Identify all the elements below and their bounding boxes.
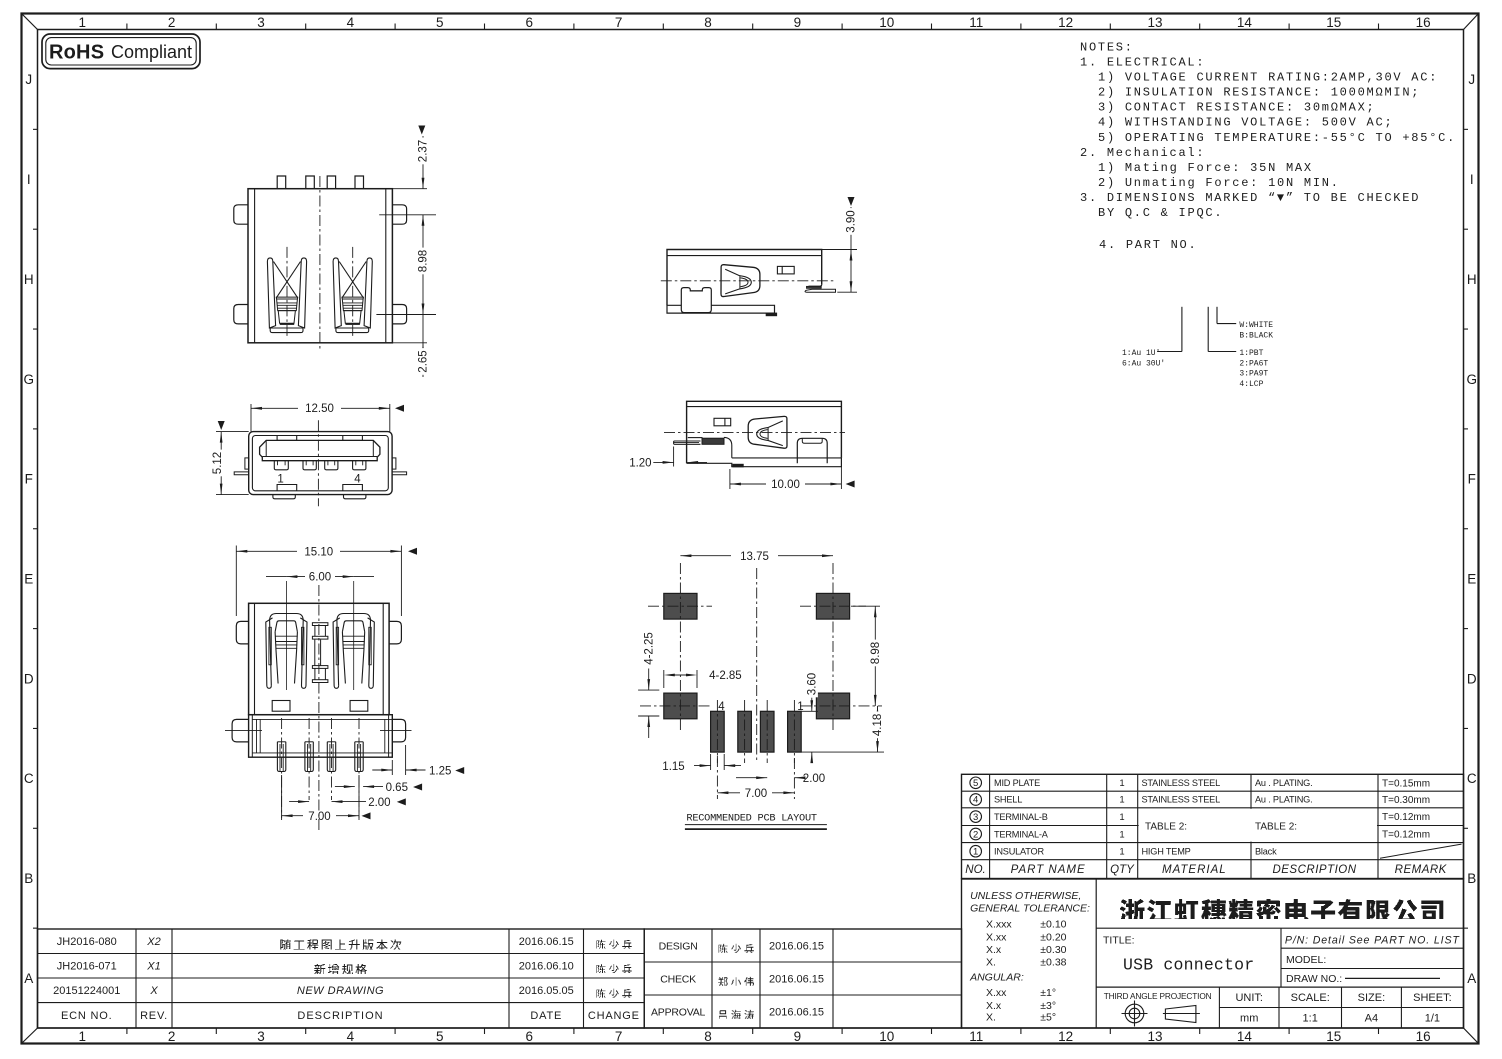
svg-text:J: J xyxy=(1468,72,1475,87)
svg-text:F: F xyxy=(1468,472,1476,487)
svg-text:4.18: 4.18 xyxy=(872,714,884,736)
svg-text:1: 1 xyxy=(277,473,283,485)
svg-text:4: 4 xyxy=(347,15,355,30)
svg-text:I: I xyxy=(27,172,31,187)
svg-text:12: 12 xyxy=(1058,15,1073,30)
svg-text:UNLESS OTHERWISE,: UNLESS OTHERWISE, xyxy=(970,890,1081,902)
svg-text:1.15: 1.15 xyxy=(662,761,684,773)
svg-text:2: 2 xyxy=(973,829,978,840)
svg-text:1.25: 1.25 xyxy=(429,766,451,778)
svg-text:4: 4 xyxy=(718,701,725,713)
svg-text:ANGULAR:: ANGULAR: xyxy=(969,972,1024,984)
svg-text:9: 9 xyxy=(794,1029,802,1044)
svg-text:11: 11 xyxy=(969,1029,983,1044)
svg-text:8.98: 8.98 xyxy=(418,250,430,272)
svg-text:1: 1 xyxy=(1119,846,1124,857)
svg-text:DRAW NO.:: DRAW NO.: xyxy=(1286,973,1342,985)
svg-text:C: C xyxy=(24,771,34,786)
svg-text:2016.06.15: 2016.06.15 xyxy=(769,973,824,985)
svg-text:20151224001: 20151224001 xyxy=(53,985,120,997)
svg-text:14: 14 xyxy=(1237,15,1253,30)
svg-text:T=0.12mm: T=0.12mm xyxy=(1382,812,1430,823)
svg-text:G: G xyxy=(24,372,35,387)
svg-text:8.98: 8.98 xyxy=(870,642,882,664)
svg-text:DATE: DATE xyxy=(530,1010,562,1022)
svg-text:4-2.25: 4-2.25 xyxy=(643,632,655,665)
svg-text:4: 4 xyxy=(347,1029,355,1044)
svg-text:6:Au 30U': 6:Au 30U' xyxy=(1122,359,1165,368)
svg-text:3: 3 xyxy=(257,1029,265,1044)
svg-text:1) VOLTAGE CURRENT RATING:2AMP: 1) VOLTAGE CURRENT RATING:2AMP,30V AC: xyxy=(1098,70,1438,84)
svg-text:DESCRIPTION: DESCRIPTION xyxy=(297,1010,383,1022)
svg-text:2.00: 2.00 xyxy=(368,797,390,809)
svg-text:12: 12 xyxy=(1058,1029,1073,1044)
svg-text:MODEL:: MODEL: xyxy=(1286,954,1326,966)
svg-text:4: 4 xyxy=(354,473,361,485)
svg-text:D: D xyxy=(1467,671,1477,686)
svg-text:10: 10 xyxy=(879,1029,894,1044)
svg-text:±5°: ±5° xyxy=(1040,1011,1056,1023)
svg-text:8: 8 xyxy=(704,1029,712,1044)
svg-text:5: 5 xyxy=(436,15,444,30)
svg-text:JH2016-071: JH2016-071 xyxy=(57,961,117,973)
svg-text:7: 7 xyxy=(615,1029,623,1044)
svg-text:15: 15 xyxy=(1326,1029,1341,1044)
svg-text:W:WHITE: W:WHITE xyxy=(1239,321,1273,330)
svg-text:TABLE 2:: TABLE 2: xyxy=(1255,822,1297,833)
svg-text:2) Unmating Force: 10N MIN.: 2) Unmating Force: 10N MIN. xyxy=(1098,176,1340,190)
svg-text:1: 1 xyxy=(1119,812,1124,823)
svg-text:X.x: X.x xyxy=(986,944,1002,956)
svg-text:X.xx: X.xx xyxy=(986,931,1007,943)
svg-text:H: H xyxy=(24,272,34,287)
svg-text:2.37: 2.37 xyxy=(418,140,430,162)
svg-text:7: 7 xyxy=(615,15,623,30)
svg-text:1: 1 xyxy=(1119,795,1124,806)
svg-text:13: 13 xyxy=(1147,1029,1162,1044)
svg-text:2:PA6T: 2:PA6T xyxy=(1239,359,1268,368)
svg-text:QTY: QTY xyxy=(1110,864,1135,876)
svg-text:1. ELECTRICAL:: 1. ELECTRICAL: xyxy=(1080,55,1205,69)
svg-text:DESIGN: DESIGN xyxy=(659,940,698,952)
svg-text:2016.05.05: 2016.05.05 xyxy=(519,985,574,997)
svg-text:A: A xyxy=(1467,971,1476,986)
svg-text:3.60: 3.60 xyxy=(806,673,818,695)
svg-text:3.90: 3.90 xyxy=(846,210,858,232)
svg-text:B: B xyxy=(24,871,33,886)
svg-text:MID PLATE: MID PLATE xyxy=(994,778,1040,788)
svg-text:10.00: 10.00 xyxy=(771,479,800,491)
svg-text:UNIT:: UNIT: xyxy=(1235,992,1263,1004)
svg-text:2: 2 xyxy=(168,15,176,30)
svg-text:SHELL: SHELL xyxy=(994,795,1022,805)
svg-text:5.12: 5.12 xyxy=(212,452,224,474)
svg-text:A4: A4 xyxy=(1365,1013,1378,1025)
svg-text:±0.10: ±0.10 xyxy=(1040,919,1066,931)
svg-text:P/N: Detail See PART NO. LIST: P/N: Detail See PART NO. LIST xyxy=(1285,935,1461,947)
svg-text:16: 16 xyxy=(1416,1029,1431,1044)
svg-text:I: I xyxy=(1470,172,1474,187)
svg-text:2: 2 xyxy=(168,1029,176,1044)
svg-text:F: F xyxy=(25,472,33,487)
svg-text:GENERAL TOLERANCE:: GENERAL TOLERANCE: xyxy=(970,903,1090,915)
svg-text:SCALE:: SCALE: xyxy=(1291,992,1330,1004)
svg-text:±1°: ±1° xyxy=(1040,987,1056,999)
svg-text:REV.: REV. xyxy=(140,1010,168,1022)
svg-text:X2: X2 xyxy=(146,936,160,948)
svg-text:4: 4 xyxy=(973,795,978,806)
svg-text:X.x: X.x xyxy=(986,1000,1002,1012)
svg-text:5) OPERATING TEMPERATURE:-55°C: 5) OPERATING TEMPERATURE:-55°C TO +85°C. xyxy=(1098,131,1456,145)
svg-text:X.xxx: X.xxx xyxy=(986,919,1012,931)
svg-text:9: 9 xyxy=(794,15,802,30)
svg-text:REMARK: REMARK xyxy=(1395,864,1448,876)
svg-text:6: 6 xyxy=(525,1029,533,1044)
svg-text:4) WITHSTANDING VOLTAGE: 500V: 4) WITHSTANDING VOLTAGE: 500V AC; xyxy=(1098,116,1393,130)
svg-text:HIGH TEMP: HIGH TEMP xyxy=(1142,846,1191,856)
svg-text:11: 11 xyxy=(969,15,983,30)
svg-text:1: 1 xyxy=(1119,829,1124,840)
svg-text:2.65: 2.65 xyxy=(418,350,430,372)
svg-text:Au . PLATING.: Au . PLATING. xyxy=(1255,795,1312,805)
svg-text:12.50: 12.50 xyxy=(305,403,334,415)
svg-text:3) CONTACT RESISTANCE: 30mΩMAX: 3) CONTACT RESISTANCE: 30mΩMAX; xyxy=(1098,101,1376,115)
svg-text:1: 1 xyxy=(973,846,978,857)
svg-text:H: H xyxy=(1467,272,1477,287)
svg-text:15: 15 xyxy=(1326,15,1341,30)
svg-text:6: 6 xyxy=(525,15,533,30)
svg-text:3: 3 xyxy=(973,812,978,823)
svg-text:BY Q.C & IPQC.: BY Q.C & IPQC. xyxy=(1098,206,1223,220)
svg-text:X.: X. xyxy=(986,1011,996,1023)
svg-text:X.: X. xyxy=(986,957,996,969)
svg-text:NEW DRAWING: NEW DRAWING xyxy=(297,985,384,997)
svg-text:14: 14 xyxy=(1237,1029,1253,1044)
svg-text:1:1: 1:1 xyxy=(1303,1013,1318,1025)
svg-text:E: E xyxy=(24,571,33,586)
svg-text:X: X xyxy=(149,985,158,997)
svg-text:G: G xyxy=(1467,372,1478,387)
svg-text:2) INSULATION RESISTANCE: 1000: 2) INSULATION RESISTANCE: 1000MΩMIN; xyxy=(1098,86,1420,100)
svg-text:0.65: 0.65 xyxy=(386,782,408,794)
svg-text:1:PBT: 1:PBT xyxy=(1239,349,1263,358)
svg-text:1: 1 xyxy=(1119,778,1124,789)
svg-text:J: J xyxy=(25,72,32,87)
svg-text:4. PART NO.: 4. PART NO. xyxy=(1099,238,1197,252)
svg-text:2016.06.15: 2016.06.15 xyxy=(769,1006,824,1018)
svg-text:TITLE:: TITLE: xyxy=(1103,935,1135,947)
svg-text:STAINLESS STEEL: STAINLESS STEEL xyxy=(1142,795,1221,805)
svg-text:±3°: ±3° xyxy=(1040,1000,1056,1012)
svg-text:15.10: 15.10 xyxy=(304,546,333,558)
svg-text:1) Mating Force: 35N MAX: 1) Mating Force: 35N MAX xyxy=(1098,161,1313,175)
svg-text:X.xx: X.xx xyxy=(986,987,1007,999)
svg-text:X1: X1 xyxy=(146,961,160,973)
svg-text:±0.30: ±0.30 xyxy=(1040,944,1066,956)
svg-text:1: 1 xyxy=(78,15,86,30)
svg-text:USB connector: USB connector xyxy=(1123,956,1254,975)
svg-text:JH2016-080: JH2016-080 xyxy=(57,936,117,948)
svg-text:B: B xyxy=(1467,871,1476,886)
svg-text:Black: Black xyxy=(1255,846,1277,856)
svg-text:CHECK: CHECK xyxy=(660,973,696,985)
svg-text:ECN NO.: ECN NO. xyxy=(61,1010,112,1022)
svg-text:3: 3 xyxy=(257,15,265,30)
svg-text:INSULATOR: INSULATOR xyxy=(994,846,1044,856)
svg-text:DESCRIPTION: DESCRIPTION xyxy=(1272,864,1356,876)
svg-text:C: C xyxy=(1467,771,1477,786)
svg-text:TABLE 2:: TABLE 2: xyxy=(1145,822,1187,833)
svg-text:TERMINAL-A: TERMINAL-A xyxy=(994,829,1049,839)
svg-text:4:LCP: 4:LCP xyxy=(1239,380,1263,389)
svg-text:13.75: 13.75 xyxy=(740,551,769,563)
svg-text:CHANGE: CHANGE xyxy=(588,1010,640,1022)
svg-text:Au . PLATING.: Au . PLATING. xyxy=(1255,778,1312,788)
svg-text:RoHS: RoHS xyxy=(49,42,104,64)
svg-text:2. Mechanical:: 2. Mechanical: xyxy=(1080,146,1205,160)
svg-text:2.00: 2.00 xyxy=(803,773,825,785)
svg-text:±0.38: ±0.38 xyxy=(1040,957,1066,969)
svg-text:7.00: 7.00 xyxy=(308,811,330,823)
svg-text:mm: mm xyxy=(1240,1013,1258,1025)
svg-text:2016.06.15: 2016.06.15 xyxy=(519,936,574,948)
svg-text:13: 13 xyxy=(1147,15,1162,30)
svg-text:PART NAME: PART NAME xyxy=(1011,864,1086,876)
svg-text:NOTES:: NOTES: xyxy=(1080,40,1134,54)
svg-text:±0.20: ±0.20 xyxy=(1040,931,1066,943)
svg-text:STAINLESS STEEL: STAINLESS STEEL xyxy=(1142,778,1221,788)
svg-text:6.00: 6.00 xyxy=(309,572,331,584)
svg-text:7.00: 7.00 xyxy=(745,788,767,800)
svg-text:T=0.30mm: T=0.30mm xyxy=(1382,795,1430,806)
svg-text:B:BLACK: B:BLACK xyxy=(1239,331,1273,340)
svg-text:1.20: 1.20 xyxy=(629,458,651,470)
svg-text:3. DIMENSIONS MARKED “▼” TO BE: 3. DIMENSIONS MARKED “▼” TO BE CHECKED xyxy=(1080,191,1420,205)
svg-text:RECOMMENDED PCB LAYOUT: RECOMMENDED PCB LAYOUT xyxy=(686,812,817,824)
svg-text:E: E xyxy=(1467,571,1476,586)
svg-text:16: 16 xyxy=(1416,15,1431,30)
svg-text:1:Au 1U': 1:Au 1U' xyxy=(1122,349,1160,358)
svg-text:Compliant: Compliant xyxy=(111,42,192,62)
svg-text:2016.06.15: 2016.06.15 xyxy=(769,940,824,952)
svg-text:MATERIAL: MATERIAL xyxy=(1162,864,1227,876)
svg-text:3:PA9T: 3:PA9T xyxy=(1239,370,1268,379)
svg-text:NO.: NO. xyxy=(965,864,985,876)
svg-text:T=0.15mm: T=0.15mm xyxy=(1382,778,1430,789)
svg-text:10: 10 xyxy=(879,15,894,30)
svg-text:SHEET:: SHEET: xyxy=(1413,992,1452,1004)
svg-text:SIZE:: SIZE: xyxy=(1358,992,1386,1004)
svg-text:4-2.85: 4-2.85 xyxy=(709,670,742,682)
svg-text:5: 5 xyxy=(973,778,978,789)
svg-text:T=0.12mm: T=0.12mm xyxy=(1382,830,1430,841)
svg-text:APPROVAL: APPROVAL xyxy=(651,1006,706,1018)
svg-text:1/1: 1/1 xyxy=(1425,1013,1440,1025)
svg-text:TERMINAL-B: TERMINAL-B xyxy=(994,812,1048,822)
svg-text:THIRD ANGLE PROJECTION: THIRD ANGLE PROJECTION xyxy=(1104,991,1212,1001)
svg-text:8: 8 xyxy=(704,15,712,30)
svg-text:D: D xyxy=(24,671,34,686)
svg-text:A: A xyxy=(24,971,33,986)
svg-text:2016.06.10: 2016.06.10 xyxy=(519,961,574,973)
svg-text:5: 5 xyxy=(436,1029,444,1044)
svg-text:1: 1 xyxy=(78,1029,86,1044)
